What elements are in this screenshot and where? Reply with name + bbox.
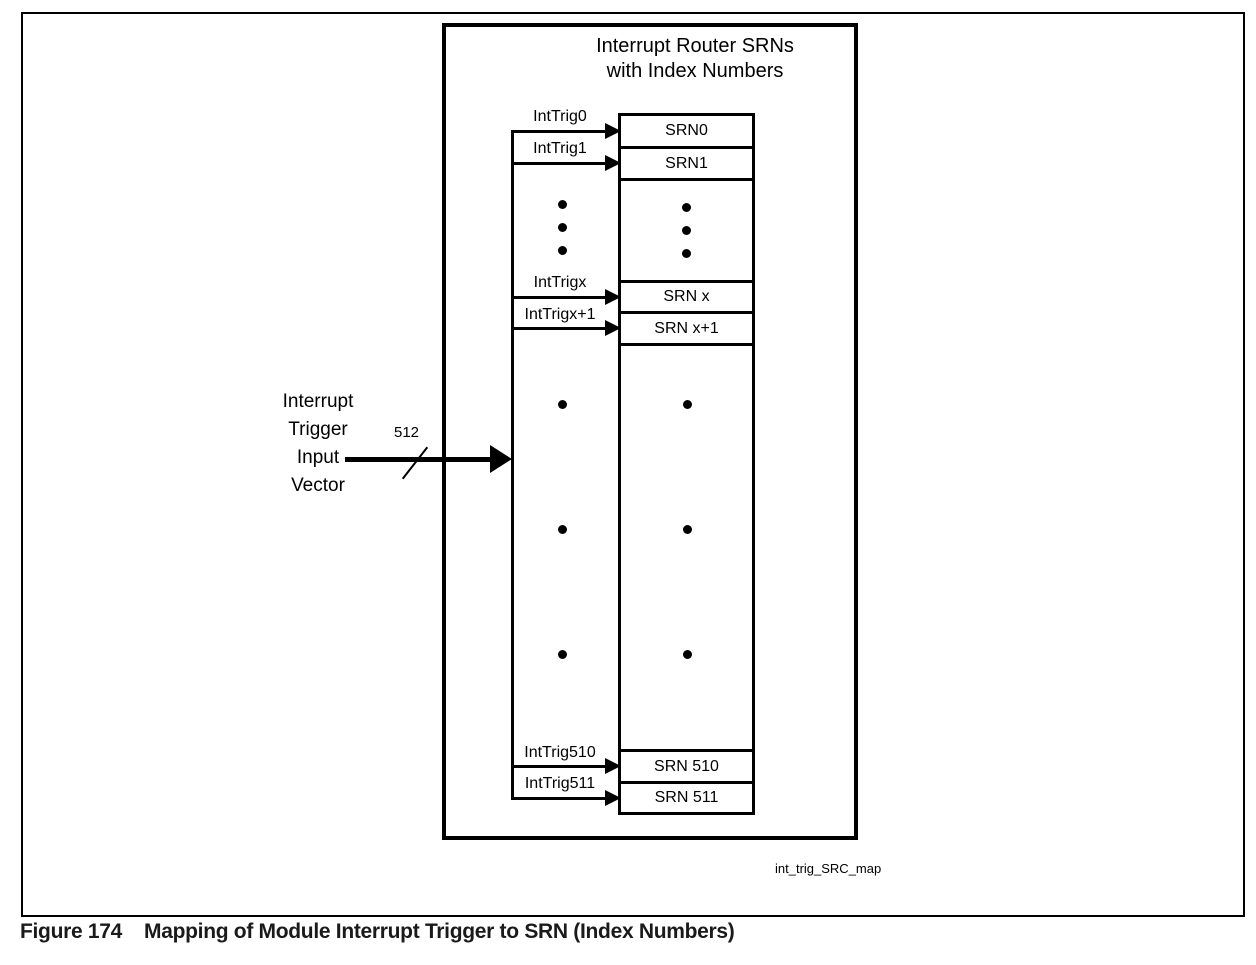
inttrig511-arrow bbox=[511, 797, 606, 800]
srn-cell-label: SRN 511 bbox=[655, 789, 719, 807]
ellipsis-dot bbox=[558, 223, 567, 232]
srn-cell-srnx1: SRN x+1 bbox=[621, 314, 752, 346]
srn-table: SRN0 SRN1 SRN x SRN x+1 SRN 510 SRN 511 bbox=[618, 113, 755, 815]
continuation-dot bbox=[683, 400, 692, 409]
bus-width-label: 512 bbox=[394, 424, 419, 441]
trigger-ellipsis-dots bbox=[558, 200, 567, 255]
srn-cell-label: SRN x bbox=[663, 288, 709, 306]
srn-cell-label: SRN 510 bbox=[654, 758, 719, 776]
srn-cell-label: SRN x+1 bbox=[654, 320, 718, 338]
input-vector-label: Interrupt Trigger Input Vector bbox=[264, 388, 372, 500]
inttrig510-arrow bbox=[511, 765, 606, 768]
inttrigx-label: IntTrigx bbox=[504, 273, 616, 293]
continuation-dot bbox=[683, 525, 692, 534]
diagram-title-line1: Interrupt Router SRNs bbox=[555, 34, 835, 59]
figure-caption: Figure 174Mapping of Module Interrupt Tr… bbox=[20, 920, 734, 944]
srn-cell-label: SRN1 bbox=[665, 155, 708, 173]
inttrigx-arrow bbox=[511, 296, 606, 299]
figure-caption-title: Mapping of Module Interrupt Trigger to S… bbox=[144, 920, 734, 943]
continuation-dot bbox=[683, 650, 692, 659]
srn-cell-srn0: SRN0 bbox=[621, 116, 752, 149]
figure-canvas: Interrupt Router SRNs with Index Numbers… bbox=[0, 0, 1256, 965]
continuation-dot bbox=[558, 650, 567, 659]
inttrig511-label: IntTrig511 bbox=[504, 774, 616, 794]
inttrig1-arrow bbox=[511, 162, 606, 165]
inttrig510-label: IntTrig510 bbox=[504, 743, 616, 763]
srn-cell-srn511: SRN 511 bbox=[621, 784, 752, 812]
ellipsis-dot bbox=[682, 203, 691, 212]
ellipsis-dot bbox=[558, 246, 567, 255]
ellipsis-dot bbox=[682, 249, 691, 258]
input-vector-line1: Interrupt bbox=[264, 388, 372, 416]
continuation-dot bbox=[558, 400, 567, 409]
diagram-title: Interrupt Router SRNs with Index Numbers bbox=[555, 34, 835, 84]
inttrigx1-label: IntTrigx+1 bbox=[504, 305, 616, 325]
srn-cell-srnx: SRN x bbox=[621, 283, 752, 314]
srn-cell-label: SRN0 bbox=[665, 122, 708, 140]
input-vector-line2: Trigger bbox=[264, 416, 372, 444]
ellipsis-dot bbox=[558, 200, 567, 209]
inttrigx1-arrow bbox=[511, 327, 606, 330]
input-vector-line4: Vector bbox=[264, 472, 372, 500]
srn-ellipsis-cell bbox=[621, 181, 752, 283]
drawing-id-text: int_trig_SRC_map bbox=[775, 861, 881, 876]
continuation-dot bbox=[558, 525, 567, 534]
srn-cell-srn510: SRN 510 bbox=[621, 752, 752, 784]
diagram-title-line2: with Index Numbers bbox=[555, 59, 835, 84]
srn-cell-srn1: SRN1 bbox=[621, 149, 752, 181]
inttrig1-label: IntTrig1 bbox=[504, 139, 616, 159]
figure-caption-number: Figure 174 bbox=[20, 920, 122, 943]
inttrig0-label: IntTrig0 bbox=[504, 107, 616, 127]
ellipsis-dot bbox=[682, 226, 691, 235]
inttrig0-arrow bbox=[511, 130, 606, 133]
